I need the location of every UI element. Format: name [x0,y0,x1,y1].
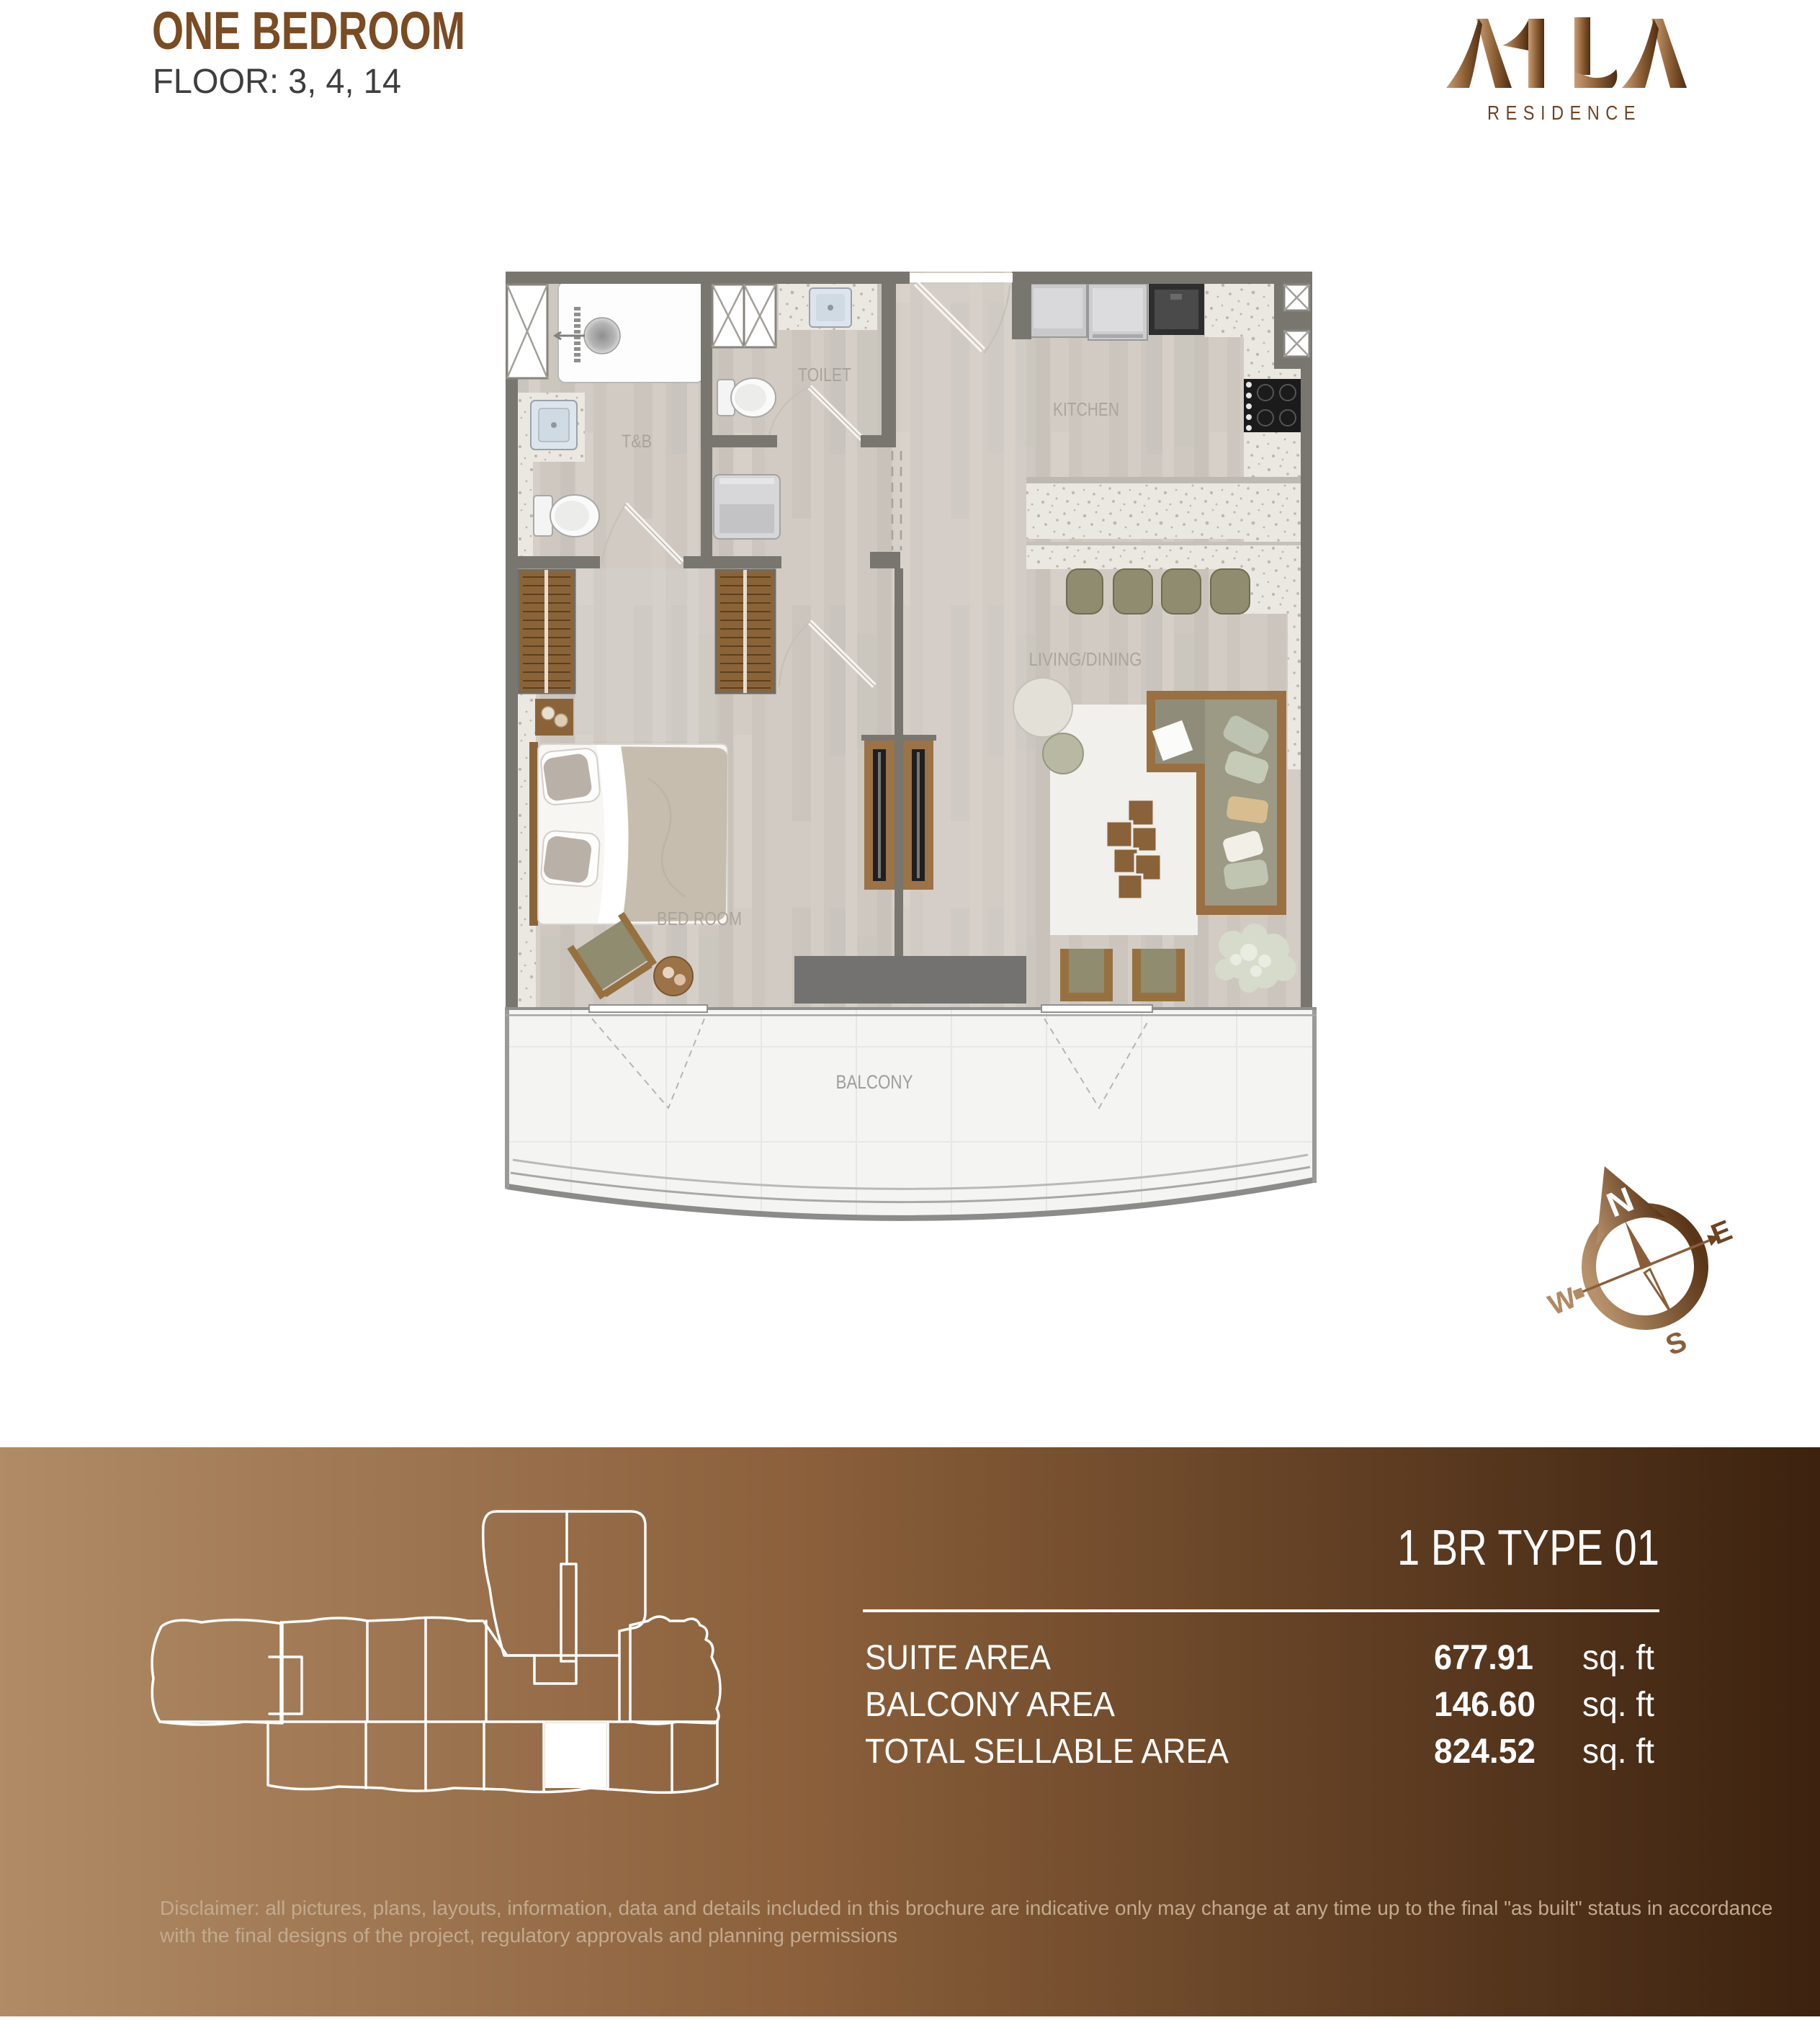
svg-text:TOILET: TOILET [798,364,851,385]
svg-text:with the final designs of the: with the final designs of the project, r… [159,1924,897,1947]
svg-text:146.60: 146.60 [1434,1686,1536,1724]
svg-text:SUITE AREA: SUITE AREA [865,1639,1051,1677]
svg-text:ONE BEDROOM: ONE BEDROOM [152,1,465,61]
svg-text:TOTAL SELLABLE AREA: TOTAL SELLABLE AREA [865,1733,1229,1771]
svg-text:RESIDENCE: RESIDENCE [1487,102,1641,124]
svg-text:sq. ft: sq. ft [1582,1639,1654,1677]
svg-text:BALCONY: BALCONY [836,1071,913,1093]
svg-text:1 BR TYPE 01: 1 BR TYPE 01 [1397,1519,1659,1576]
svg-text:sq. ft: sq. ft [1582,1686,1654,1724]
svg-text:BED ROOM: BED ROOM [657,908,742,929]
svg-text:FLOOR: 3, 4, 14: FLOOR: 3, 4, 14 [153,63,401,101]
svg-text:677.91: 677.91 [1434,1639,1533,1677]
svg-text:BALCONY AREA: BALCONY AREA [865,1686,1115,1724]
svg-text:KITCHEN: KITCHEN [1053,398,1119,420]
svg-text:LIVING/DINING: LIVING/DINING [1029,648,1142,670]
svg-text:sq. ft: sq. ft [1582,1733,1654,1771]
svg-text:824.52: 824.52 [1434,1733,1536,1771]
svg-text:T&B: T&B [622,432,652,452]
svg-text:Disclaimer: all pictures, plan: Disclaimer: all pictures, plans, layouts… [160,1897,1772,1919]
